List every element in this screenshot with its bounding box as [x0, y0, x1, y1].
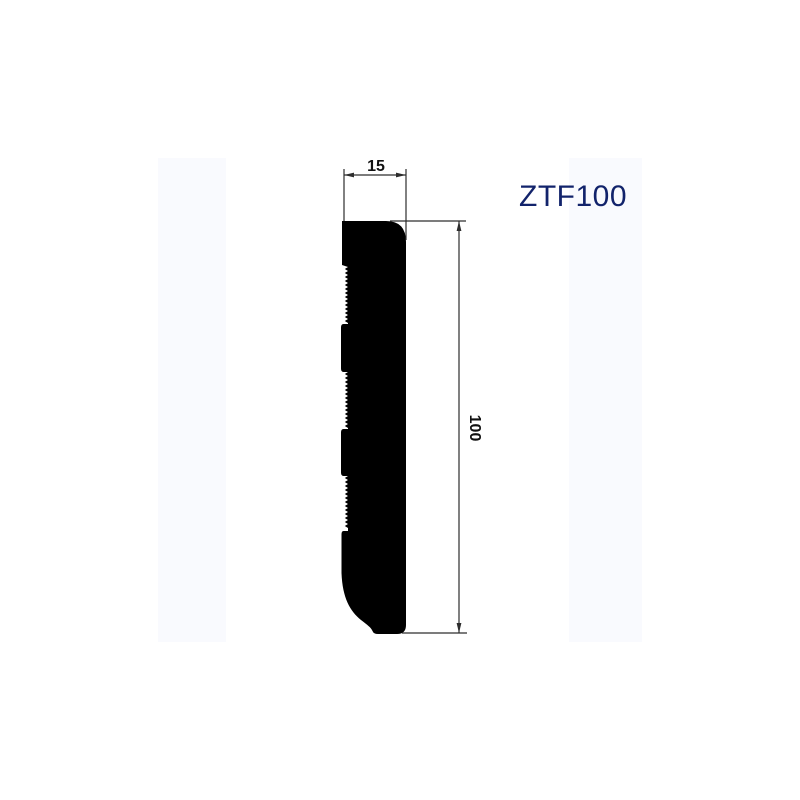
- profile-silhouette: [341, 221, 406, 634]
- product-drawing-page: 15 100 ZTF100: [0, 0, 800, 800]
- arrowhead-right-icon: [396, 173, 406, 178]
- arrowhead-up-icon: [457, 221, 462, 231]
- technical-drawing: 15 100 ZTF100: [0, 0, 800, 800]
- height-dimension-label: 100: [466, 415, 483, 442]
- arrowhead-left-icon: [344, 173, 354, 178]
- width-dimension-label: 15: [367, 158, 385, 175]
- arrowhead-down-icon: [457, 623, 462, 633]
- product-code-label: ZTF100: [519, 180, 627, 213]
